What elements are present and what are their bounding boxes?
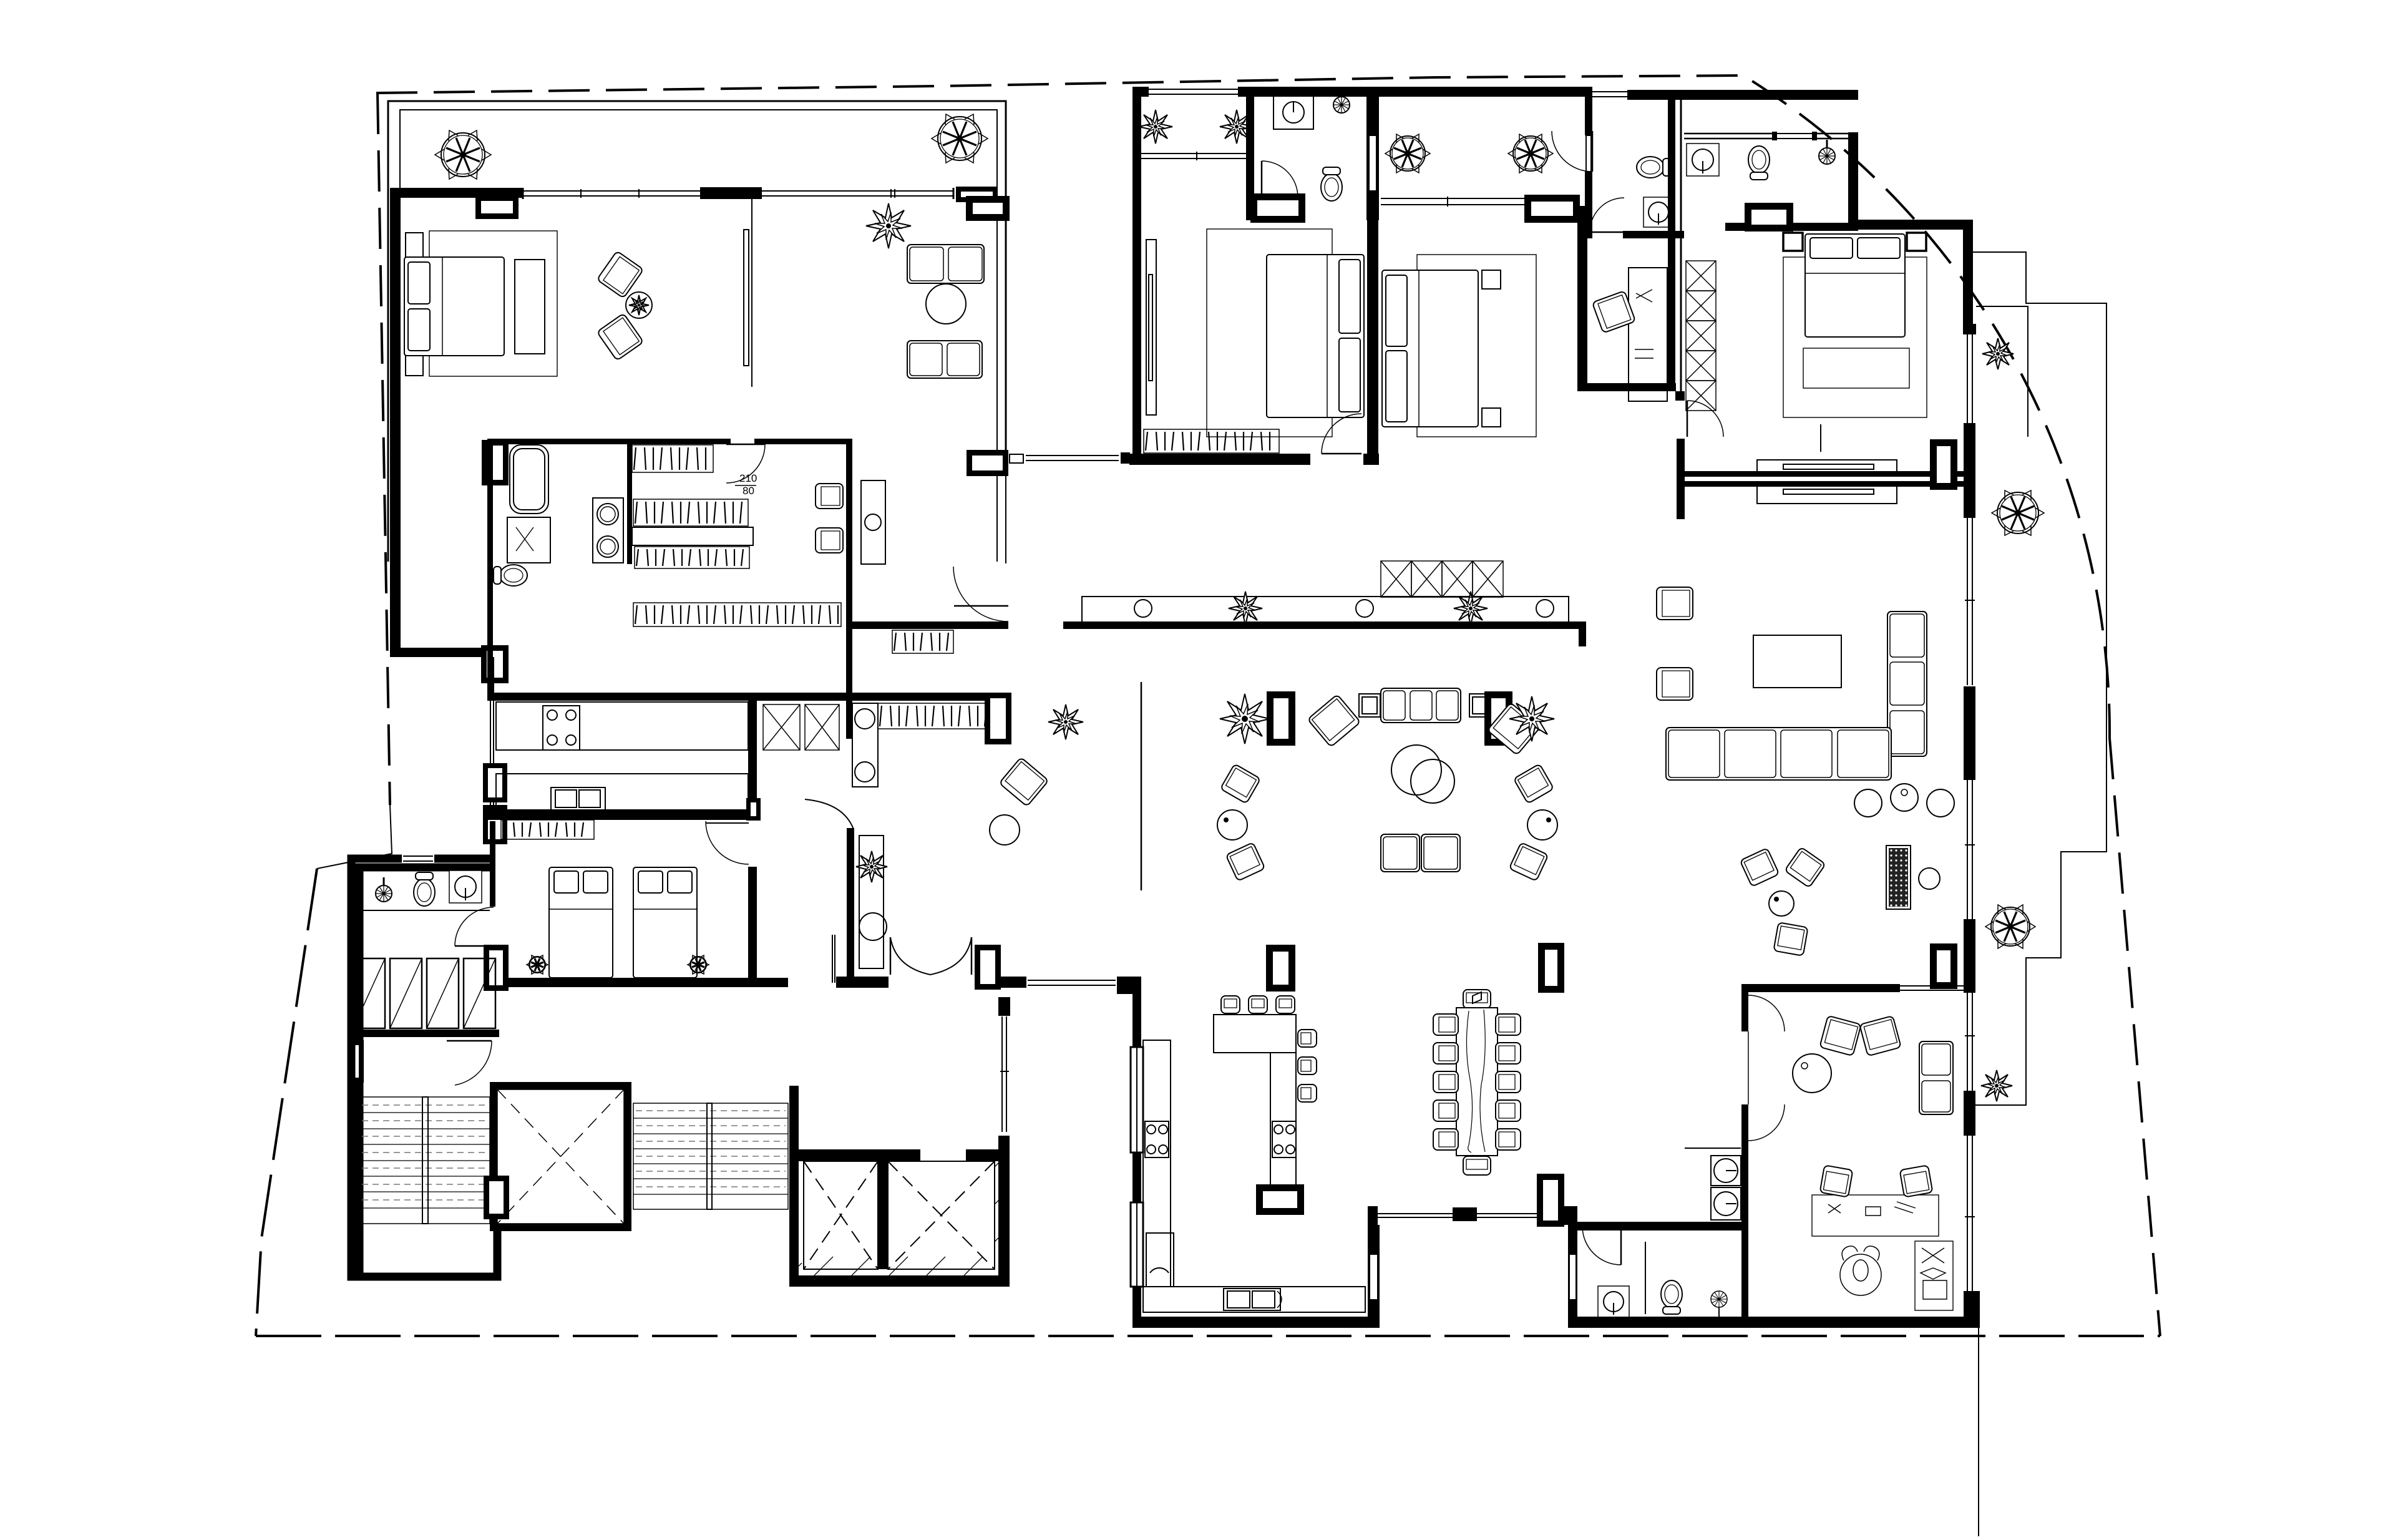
svg-text:80: 80 bbox=[743, 485, 754, 497]
svg-text:210: 210 bbox=[739, 472, 757, 484]
